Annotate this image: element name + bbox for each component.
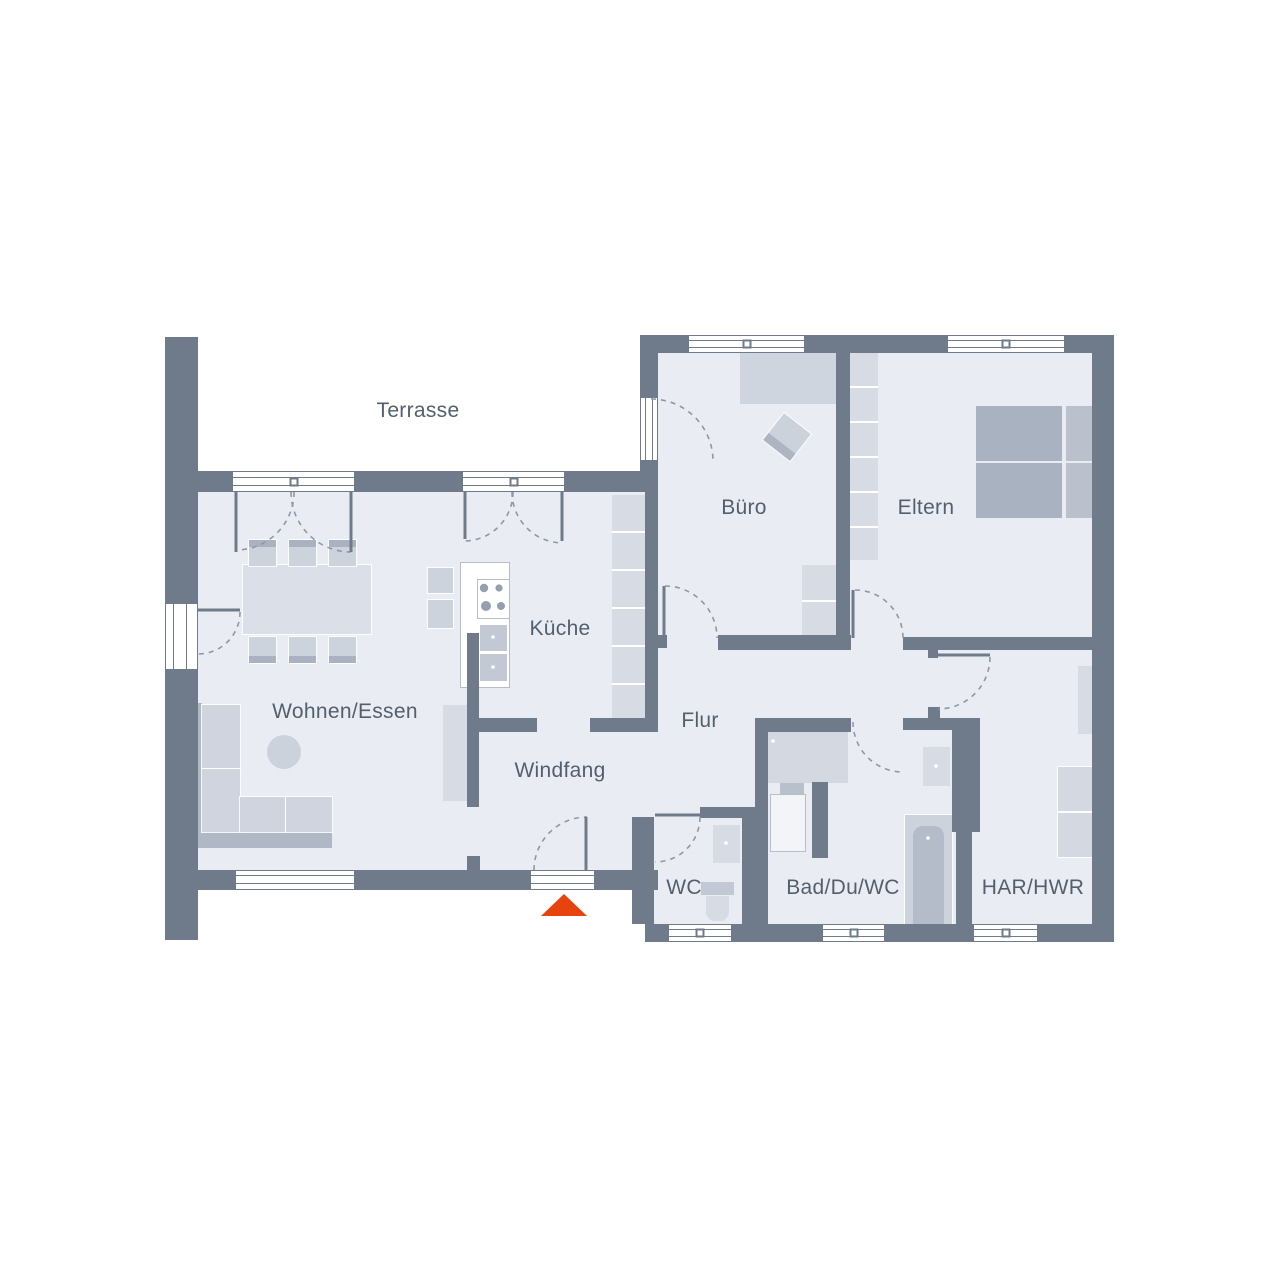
door-arc xyxy=(853,722,903,772)
room-label-kueche: Küche xyxy=(529,617,590,641)
room-label-terrasse: Terrasse xyxy=(377,399,460,423)
room-label-har-hwr: HAR/HWR xyxy=(982,876,1084,900)
fixture-dot xyxy=(934,764,938,768)
door-arc xyxy=(198,612,240,654)
door-arc xyxy=(534,817,587,870)
entrance-marker-icon xyxy=(541,894,587,916)
stove-burner xyxy=(497,602,505,610)
stove-burner xyxy=(495,584,502,591)
fixture-dot xyxy=(491,635,495,639)
fixture-dot xyxy=(724,841,728,845)
room-label-buero: Büro xyxy=(721,496,767,520)
room-label-wohnen-essen: Wohnen/Essen xyxy=(272,700,418,724)
fixture-dot xyxy=(491,665,495,669)
door-arc xyxy=(655,817,700,862)
stove-burner xyxy=(480,584,488,592)
door-swings-layer xyxy=(0,0,1280,1280)
floor-plan: TerrasseBüroElternKücheWohnen/EssenFlurW… xyxy=(0,0,1280,1280)
fixture-dot xyxy=(771,739,775,743)
door-arc xyxy=(291,492,351,552)
door-arc xyxy=(665,586,717,638)
door-arc xyxy=(236,492,294,550)
stove-burner xyxy=(481,601,491,611)
room-label-eltern: Eltern xyxy=(898,496,955,520)
room-label-wc: WC xyxy=(666,876,702,900)
door-arc xyxy=(464,492,513,541)
door-arc xyxy=(938,657,990,709)
room-label-bad-du-wc: Bad/Du/WC xyxy=(786,876,900,900)
fixture-dot xyxy=(926,836,930,840)
room-label-windfang: Windfang xyxy=(514,759,605,783)
door-arc xyxy=(512,492,563,543)
door-arc xyxy=(651,399,713,461)
door-arc xyxy=(855,590,903,638)
room-label-flur: Flur xyxy=(681,709,718,733)
